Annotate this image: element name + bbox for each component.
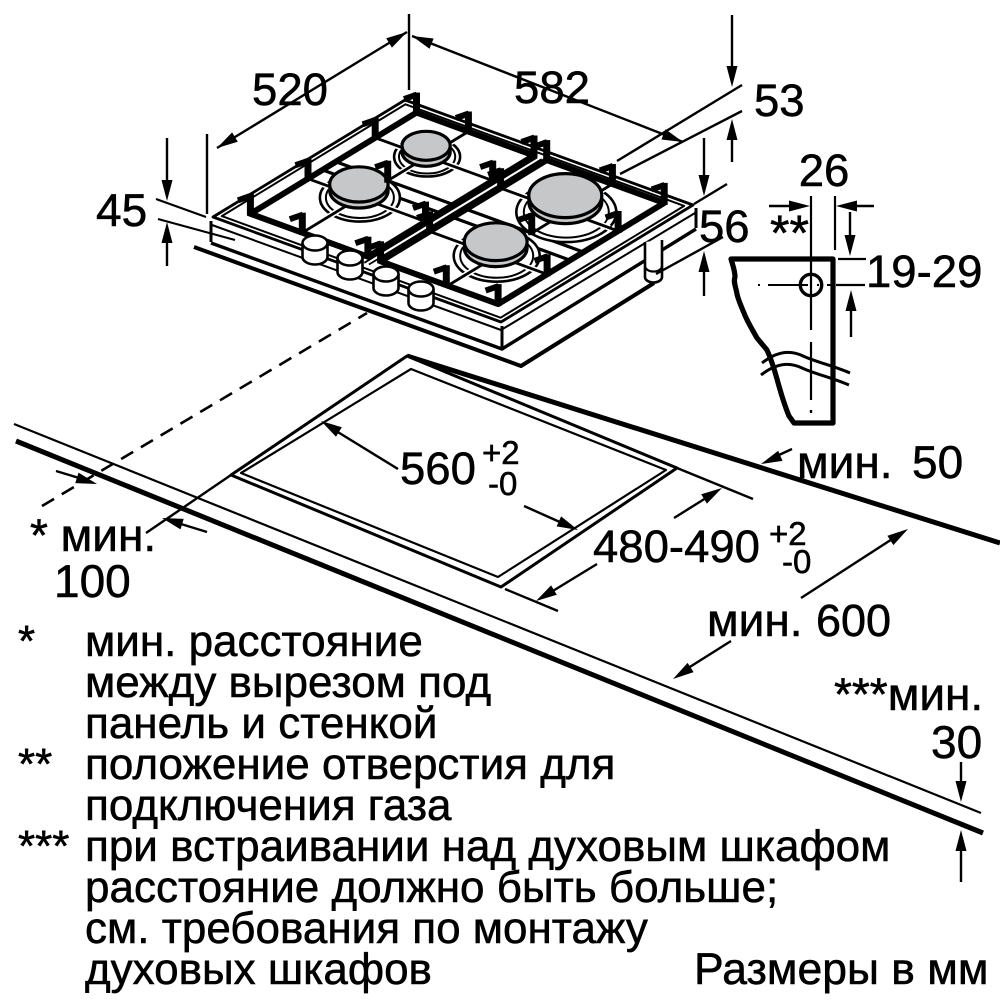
svg-text:56: 56 xyxy=(699,201,750,252)
svg-text:560: 560 xyxy=(400,443,476,494)
svg-text:**: ** xyxy=(770,205,809,261)
svg-text:100: 100 xyxy=(54,555,131,607)
svg-text:19-29: 19-29 xyxy=(866,246,982,297)
svg-text:50: 50 xyxy=(912,436,963,488)
svg-text:* мин.: * мин. xyxy=(30,509,156,561)
svg-text:-0: -0 xyxy=(782,543,811,580)
svg-text:**: ** xyxy=(18,740,52,789)
svg-text:-0: -0 xyxy=(488,465,517,502)
svg-text:мин.: мин. xyxy=(707,594,803,646)
svg-text:45: 45 xyxy=(96,184,147,236)
svg-text:мин.: мин. xyxy=(797,436,893,488)
svg-text:*: * xyxy=(18,617,35,666)
svg-text:Размеры в мм: Размеры в мм xyxy=(694,945,989,994)
svg-text:53: 53 xyxy=(754,75,805,126)
svg-text:***: *** xyxy=(18,822,69,871)
svg-text:26: 26 xyxy=(799,145,850,196)
svg-text:582: 582 xyxy=(514,62,590,113)
svg-text:480-490: 480-490 xyxy=(593,521,760,572)
svg-text:600: 600 xyxy=(816,595,891,646)
svg-text:***мин.: ***мин. xyxy=(834,668,983,720)
svg-text:520: 520 xyxy=(252,64,328,115)
svg-text:духовых шкафов: духовых шкафов xyxy=(85,945,432,994)
svg-text:30: 30 xyxy=(931,716,982,768)
